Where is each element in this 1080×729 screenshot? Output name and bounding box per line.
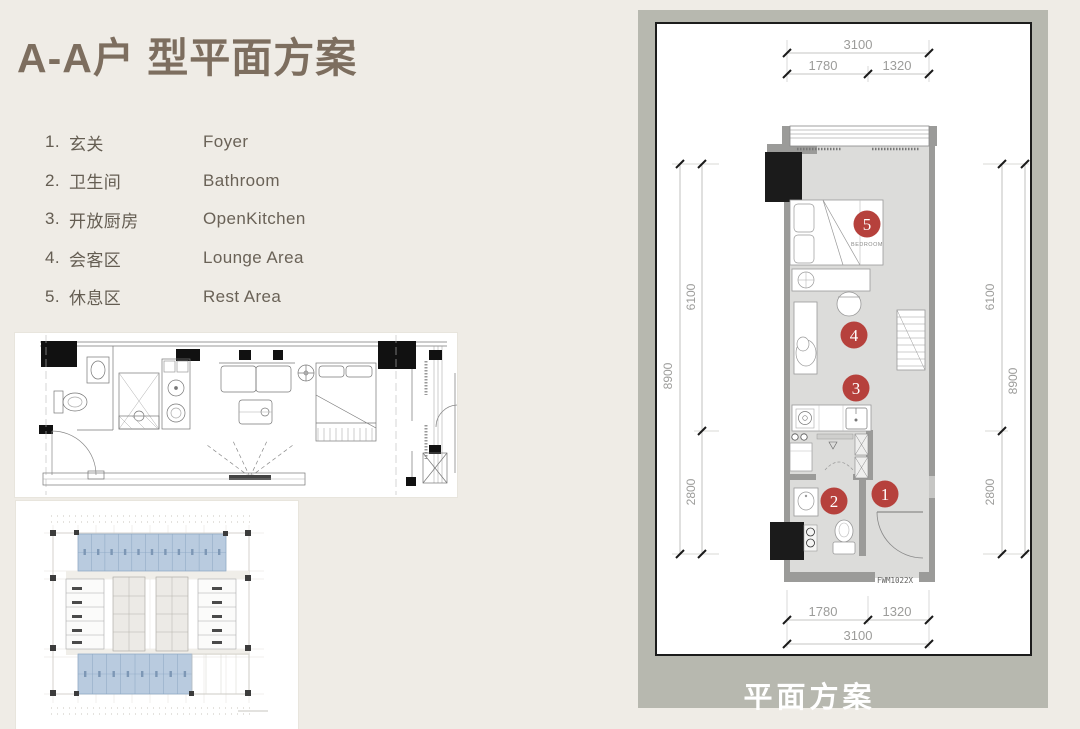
legend-label-en: Bathroom (203, 171, 280, 191)
stove (804, 525, 817, 551)
bedroom-label: BEDROOM (851, 242, 883, 248)
dim-left-lower: 2800 (684, 478, 698, 505)
unit-plan-vertical-svg: 3100 1780 1320 1780 1320 3100 8900 6100 … (657, 24, 1030, 654)
dim-top-left: 1780 (809, 58, 838, 73)
marker-foyer: 1 (872, 481, 899, 508)
legend-item-kitchen: 3. 开放厨房 OpenKitchen (45, 200, 385, 239)
chair (837, 292, 861, 316)
column-top-left (765, 152, 802, 202)
mid-units-left (66, 579, 104, 649)
marker-lounge-area: 4 (841, 322, 868, 349)
legend-label-zh: 卫生间 (69, 168, 203, 193)
cad-bed (316, 363, 376, 441)
dim-bottom-right: 1320 (883, 604, 912, 619)
legend-label-zh: 开放厨房 (69, 207, 203, 232)
legend-label-zh: 休息区 (69, 284, 203, 309)
unit-plan-horizontal-svg (15, 333, 457, 497)
legend-number: 4. (45, 248, 69, 268)
dim-bottom-left: 1780 (809, 604, 838, 619)
plan-panel: 3100 1780 1320 1780 1320 3100 8900 6100 … (638, 10, 1048, 708)
legend-item-lounge: 4. 会客区 Lounge Area (45, 239, 385, 278)
legend-number: 5. (45, 287, 69, 307)
legend-label-en: OpenKitchen (203, 209, 306, 229)
building-floor-plan-drawing (15, 500, 299, 729)
cad-sofa (219, 363, 295, 392)
column-bottom-left (770, 522, 804, 560)
cad-shower (119, 373, 159, 429)
marker-rest-area: 5 (854, 211, 881, 238)
dim-left-total: 8900 (661, 362, 675, 389)
legend-item-foyer: 1. 玄关 Foyer (45, 123, 385, 162)
unit-plan-horizontal-drawing (14, 332, 458, 498)
marker-number: 1 (881, 485, 890, 504)
cad-shaft (423, 453, 447, 483)
toilet (833, 520, 855, 554)
dim-right-total: 8900 (1006, 367, 1020, 394)
highlighted-units-bottom (78, 654, 192, 694)
cad-coffee-table (239, 400, 272, 424)
legend: 1. 玄关 Foyer 2. 卫生间 Bathroom 3. 开放厨房 Open… (45, 123, 385, 316)
right-wall-window (929, 476, 935, 498)
desk (792, 269, 870, 291)
dim-bottom-total: 3100 (844, 628, 873, 643)
cad-tv (207, 441, 293, 480)
bathroom-sink (794, 488, 818, 516)
plain-units-bottom-right (192, 654, 249, 694)
kitchen-counter (792, 405, 871, 431)
plan-caption: 平面方案 (621, 674, 998, 716)
marker-open-kitchen: 3 (843, 375, 870, 402)
legend-label-zh: 玄关 (69, 130, 203, 155)
marker-number: 2 (830, 492, 839, 511)
legend-label-en: Rest Area (203, 287, 281, 307)
lounge-cabinet (794, 302, 817, 374)
legend-number: 3. (45, 209, 69, 229)
marker-number: 3 (852, 379, 861, 398)
plan-card: 3100 1780 1320 1780 1320 3100 8900 6100 … (655, 22, 1032, 656)
legend-item-rest: 5. 休息区 Rest Area (45, 277, 385, 316)
legend-number: 1. (45, 132, 69, 152)
cad-kitchen (162, 359, 190, 429)
marker-number: 5 (863, 215, 872, 234)
dim-right-upper: 6100 (983, 283, 997, 310)
legend-number: 2. (45, 171, 69, 191)
dim-top-total: 3100 (844, 37, 873, 52)
dim-left-upper: 6100 (684, 283, 698, 310)
legend-label-en: Lounge Area (203, 248, 304, 268)
core (113, 577, 188, 651)
page-title: A-A户 型平面方案 (17, 24, 357, 84)
legend-label-zh: 会客区 (69, 246, 203, 271)
dim-right-lower: 2800 (983, 478, 997, 505)
cad-fan (298, 365, 314, 381)
shelf (897, 310, 925, 370)
unit-code-label: FWM1022X (877, 576, 914, 585)
dim-top-right: 1320 (883, 58, 912, 73)
building-floor-plan-svg (16, 501, 298, 729)
mid-units-right (198, 579, 236, 649)
legend-item-bathroom: 2. 卫生间 Bathroom (45, 162, 385, 201)
highlighted-units-top (78, 534, 226, 571)
legend-label-en: Foyer (203, 132, 248, 152)
marker-bathroom: 2 (821, 488, 848, 515)
window-band (790, 126, 929, 149)
marker-number: 4 (850, 326, 859, 345)
